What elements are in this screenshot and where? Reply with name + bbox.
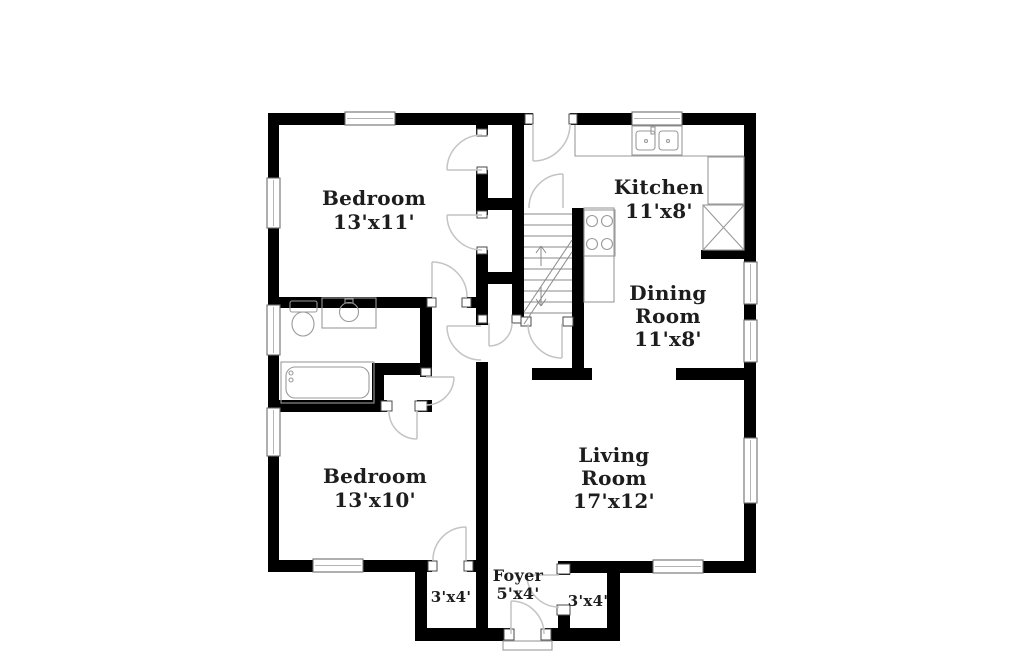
bedroom1-closet2-door — [447, 215, 482, 250]
window-dining-right-b — [744, 320, 757, 362]
window-dining-right-a — [744, 262, 757, 304]
window-living-right — [744, 438, 757, 503]
bedroom1-door — [432, 262, 467, 297]
stair-bottom-door — [528, 324, 562, 358]
bathroom-fixtures — [281, 298, 376, 403]
dining-name-line1-label: Dining — [629, 281, 706, 305]
kitchen-dims-label: 11'x8' — [625, 199, 693, 223]
living-dims-label: 17'x12' — [573, 489, 655, 513]
living-name-line1-label: Living — [578, 443, 649, 467]
dining-name-line2-label: Room — [635, 304, 701, 328]
window-kitchen-top — [632, 112, 682, 125]
bathtub — [281, 362, 374, 403]
foyer-dims-label: 5'x4' — [496, 584, 539, 603]
living-name-line2-label: Room — [581, 466, 647, 490]
dining-dims-label: 11'x8' — [634, 327, 702, 351]
bedroom1-closet1-door — [447, 135, 482, 170]
kitchen-name-label: Kitchen — [614, 175, 704, 199]
closet-right-dims-label: 3'x4' — [568, 592, 609, 610]
kitchen-sink — [632, 126, 682, 155]
window-bedroom1-top — [345, 112, 395, 125]
window-bedroom1-left — [267, 178, 280, 228]
foyer-name-label: Foyer — [493, 566, 544, 585]
stair-up-arrow — [536, 246, 546, 266]
linen-closet-door — [489, 323, 512, 346]
closet-left-dims-label: 3'x4' — [431, 588, 472, 606]
back-door — [533, 124, 570, 161]
window-bedroom2-left — [267, 408, 280, 456]
bedroom2-name-label: Bedroom — [323, 464, 427, 488]
hall-living-door — [447, 326, 481, 360]
floor-plan-page: Bedroom 13'x11' Kitchen 11'x8' Dining Ro… — [0, 0, 1024, 661]
window-living-bottom — [653, 560, 703, 573]
front-door — [511, 601, 544, 634]
stove — [584, 208, 615, 302]
staircase — [524, 214, 572, 324]
front-door-threshold — [503, 641, 552, 650]
window-bedroom2-bottom — [313, 559, 363, 572]
bedroom2-dims-label: 13'x10' — [334, 488, 416, 512]
window-bathroom-left — [267, 305, 280, 355]
bedroom1-name-label: Bedroom — [322, 186, 426, 210]
stair-break-lines — [524, 240, 572, 324]
bedroom2-door — [389, 411, 417, 439]
refrigerator — [708, 157, 744, 204]
floor-plan-svg: Bedroom 13'x11' Kitchen 11'x8' Dining Ro… — [0, 0, 1024, 661]
stair-top-door — [529, 174, 563, 208]
pantry-cabinet — [703, 205, 744, 250]
bedroom1-dims-label: 13'x11' — [333, 210, 415, 234]
bedroom2-closet-door — [433, 527, 466, 560]
